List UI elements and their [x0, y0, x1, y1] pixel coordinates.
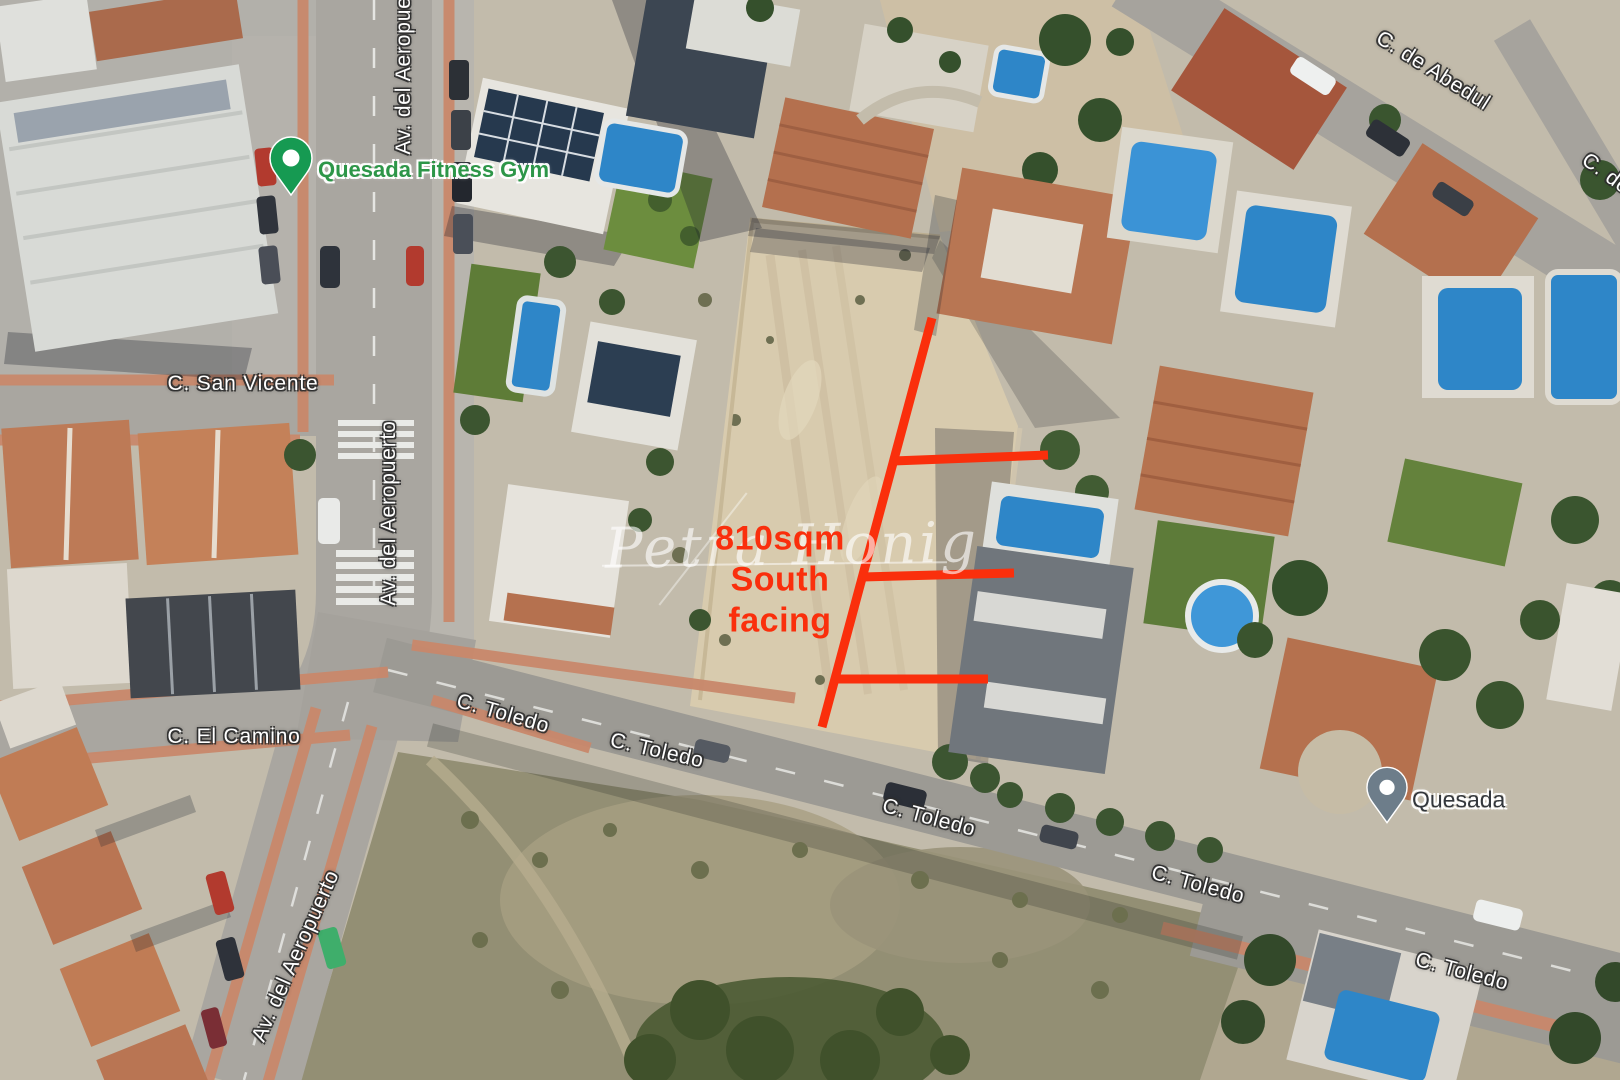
street-label-el-camino: C. El Camino	[167, 725, 300, 749]
map-viewport[interactable]: Petra Honig 810sqm South facing Av. del …	[0, 0, 1620, 1080]
quesada-label[interactable]: Quesada	[1412, 787, 1505, 814]
plot-annotation-text: 810sqm South facing	[715, 519, 845, 642]
plot-orientation-label-1: South	[715, 560, 845, 601]
street-label-san-vicente: C. San Vicente	[168, 372, 319, 396]
plot-area-label: 810sqm	[715, 519, 845, 560]
street-label-av-del-aeropuerto-top: Av. del Aeropuerto	[392, 0, 416, 155]
street-label-av-del-aeropuerto-mid: Av. del Aeropuerto	[377, 420, 401, 605]
gym-map-pin[interactable]	[269, 136, 313, 196]
quesada-map-pin[interactable]	[1366, 766, 1408, 824]
gym-label[interactable]: Quesada Fitness Gym	[318, 157, 549, 183]
plot-orientation-label-2: facing	[715, 601, 845, 642]
